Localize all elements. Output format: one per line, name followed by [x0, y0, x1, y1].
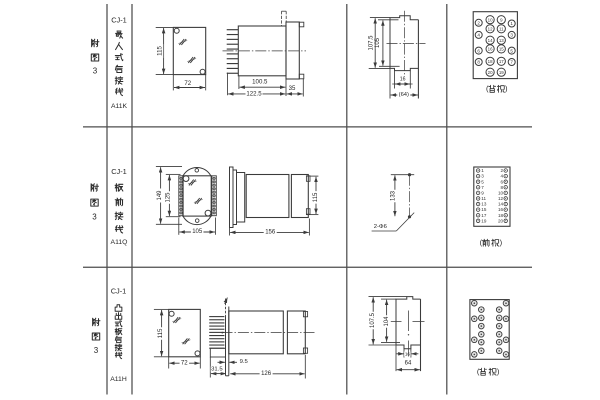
svg-text:11: 11 — [499, 27, 504, 32]
svg-text:10: 10 — [488, 17, 493, 22]
svg-text:3: 3 — [92, 213, 97, 222]
svg-text:125: 125 — [166, 192, 172, 203]
svg-text:72: 72 — [184, 80, 191, 87]
svg-text:CJ-1: CJ-1 — [111, 15, 127, 24]
svg-text:9: 9 — [481, 190, 484, 195]
svg-text:115: 115 — [313, 192, 319, 202]
svg-text:12: 12 — [498, 196, 504, 201]
svg-text:2: 2 — [477, 21, 480, 26]
svg-text:5: 5 — [510, 48, 513, 53]
svg-text:104: 104 — [384, 316, 390, 327]
svg-text:133: 133 — [391, 190, 397, 201]
svg-text:100.5: 100.5 — [252, 79, 268, 86]
svg-text:16: 16 — [405, 352, 411, 357]
svg-text:4: 4 — [477, 33, 480, 38]
svg-text:A11K: A11K — [111, 103, 128, 110]
svg-text:18: 18 — [498, 213, 504, 218]
svg-text:6: 6 — [501, 179, 504, 184]
svg-text:9.5: 9.5 — [240, 359, 249, 365]
svg-text:149: 149 — [157, 190, 163, 201]
svg-text:1: 1 — [510, 21, 513, 26]
svg-text:156: 156 — [265, 229, 276, 235]
svg-text:19: 19 — [481, 218, 487, 223]
svg-text:A11Q: A11Q — [111, 239, 128, 246]
svg-text:1: 1 — [481, 168, 484, 173]
svg-text:13: 13 — [481, 202, 487, 207]
svg-text:6: 6 — [477, 48, 480, 53]
svg-text:19: 19 — [499, 70, 504, 75]
svg-text:14: 14 — [498, 202, 504, 207]
svg-text:107.5: 107.5 — [370, 312, 376, 328]
svg-text:105: 105 — [192, 229, 203, 235]
svg-text:115: 115 — [157, 46, 164, 56]
svg-text:CJ-1: CJ-1 — [111, 287, 127, 296]
svg-text:2-Φ6: 2-Φ6 — [374, 224, 388, 230]
svg-text:8: 8 — [501, 185, 504, 190]
svg-text:107.5: 107.5 — [368, 35, 374, 51]
svg-text:2: 2 — [501, 168, 504, 173]
svg-text:3: 3 — [481, 174, 484, 179]
svg-text:4: 4 — [501, 174, 504, 179]
svg-text:7: 7 — [481, 185, 484, 190]
svg-text:11: 11 — [481, 196, 486, 201]
svg-text:17: 17 — [481, 213, 487, 218]
svg-text:3: 3 — [510, 33, 513, 38]
svg-text:12: 12 — [488, 27, 493, 32]
svg-text:15: 15 — [481, 207, 487, 212]
svg-text:105: 105 — [375, 37, 381, 48]
svg-text:16: 16 — [498, 207, 504, 212]
svg-text:35: 35 — [289, 85, 296, 92]
svg-text:10: 10 — [498, 190, 504, 195]
svg-text:15: 15 — [499, 47, 504, 52]
svg-text:(64): (64) — [399, 92, 409, 98]
svg-text:CJ-1: CJ-1 — [111, 167, 127, 176]
svg-text:122.5: 122.5 — [246, 90, 262, 97]
svg-text:72: 72 — [181, 360, 188, 367]
svg-text:8: 8 — [477, 60, 480, 65]
svg-text:16: 16 — [488, 47, 493, 52]
svg-text:A11H: A11H — [110, 376, 127, 383]
svg-text:20: 20 — [488, 70, 493, 75]
svg-text:13: 13 — [499, 38, 504, 43]
svg-text:3: 3 — [94, 346, 99, 355]
svg-text:20: 20 — [498, 218, 504, 223]
svg-text:31.5: 31.5 — [211, 366, 223, 372]
svg-text:17: 17 — [499, 59, 504, 64]
svg-text:14: 14 — [488, 38, 493, 43]
svg-text:3: 3 — [93, 67, 98, 76]
svg-text:18: 18 — [488, 59, 493, 64]
svg-text:5: 5 — [481, 179, 484, 184]
svg-text:126: 126 — [261, 371, 272, 377]
svg-text:115: 115 — [157, 328, 164, 338]
svg-text:64: 64 — [405, 361, 412, 367]
svg-text:16: 16 — [400, 76, 406, 82]
svg-text:7: 7 — [510, 60, 513, 65]
